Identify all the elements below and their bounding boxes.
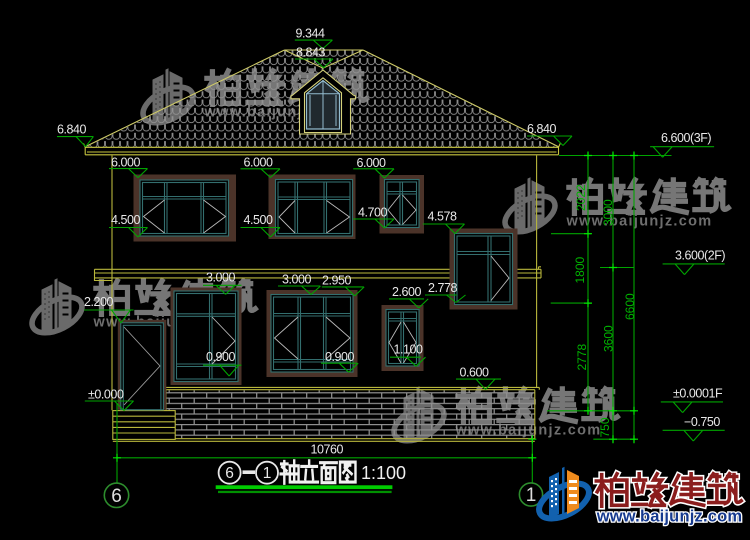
svg-text:3.000: 3.000 bbox=[282, 273, 312, 287]
svg-text:2022: 2022 bbox=[574, 184, 588, 211]
svg-text:6.000: 6.000 bbox=[111, 156, 141, 170]
svg-text:6: 6 bbox=[225, 465, 234, 482]
svg-text:750: 750 bbox=[598, 417, 612, 437]
svg-text:0.900: 0.900 bbox=[206, 350, 236, 364]
svg-text:2.950: 2.950 bbox=[322, 274, 352, 288]
svg-text:0.900: 0.900 bbox=[325, 350, 355, 364]
svg-text:1800: 1800 bbox=[573, 256, 587, 283]
svg-text:4.578: 4.578 bbox=[428, 210, 458, 224]
svg-text:6.000: 6.000 bbox=[244, 156, 274, 170]
svg-text:1: 1 bbox=[263, 465, 272, 482]
svg-text:6.600(3F): 6.600(3F) bbox=[661, 131, 711, 145]
svg-text:2.600: 2.600 bbox=[392, 285, 422, 299]
svg-text:www.baijunjz.com: www.baijunjz.com bbox=[596, 508, 743, 526]
svg-text:1: 1 bbox=[526, 485, 537, 506]
svg-text:9.344: 9.344 bbox=[296, 27, 326, 41]
svg-text:±0.0001F: ±0.0001F bbox=[673, 387, 723, 401]
svg-text:6: 6 bbox=[111, 486, 122, 507]
svg-text:6600: 6600 bbox=[623, 293, 637, 320]
svg-text:4.700: 4.700 bbox=[358, 206, 388, 220]
svg-text:3.000: 3.000 bbox=[206, 271, 236, 285]
svg-text:4.500: 4.500 bbox=[111, 213, 141, 227]
svg-text:3600: 3600 bbox=[602, 325, 616, 352]
svg-text:10760: 10760 bbox=[311, 443, 344, 457]
svg-text:0.600: 0.600 bbox=[460, 366, 490, 380]
svg-text:2.200: 2.200 bbox=[84, 295, 114, 309]
svg-text:3000: 3000 bbox=[601, 199, 615, 226]
svg-text:−0.750: −0.750 bbox=[684, 415, 720, 429]
svg-text:6.000: 6.000 bbox=[357, 156, 387, 170]
svg-text:1.100: 1.100 bbox=[394, 343, 424, 357]
svg-text:4.500: 4.500 bbox=[244, 213, 274, 227]
svg-text:1:100: 1:100 bbox=[361, 463, 406, 483]
svg-text:2778: 2778 bbox=[575, 343, 589, 370]
svg-text:6.840: 6.840 bbox=[527, 122, 557, 136]
svg-text:±0.000: ±0.000 bbox=[88, 388, 124, 402]
svg-text:6.840: 6.840 bbox=[57, 123, 87, 137]
svg-text:2.778: 2.778 bbox=[428, 281, 458, 295]
svg-text:8.843: 8.843 bbox=[296, 46, 326, 60]
svg-text:3.600(2F): 3.600(2F) bbox=[675, 249, 725, 263]
